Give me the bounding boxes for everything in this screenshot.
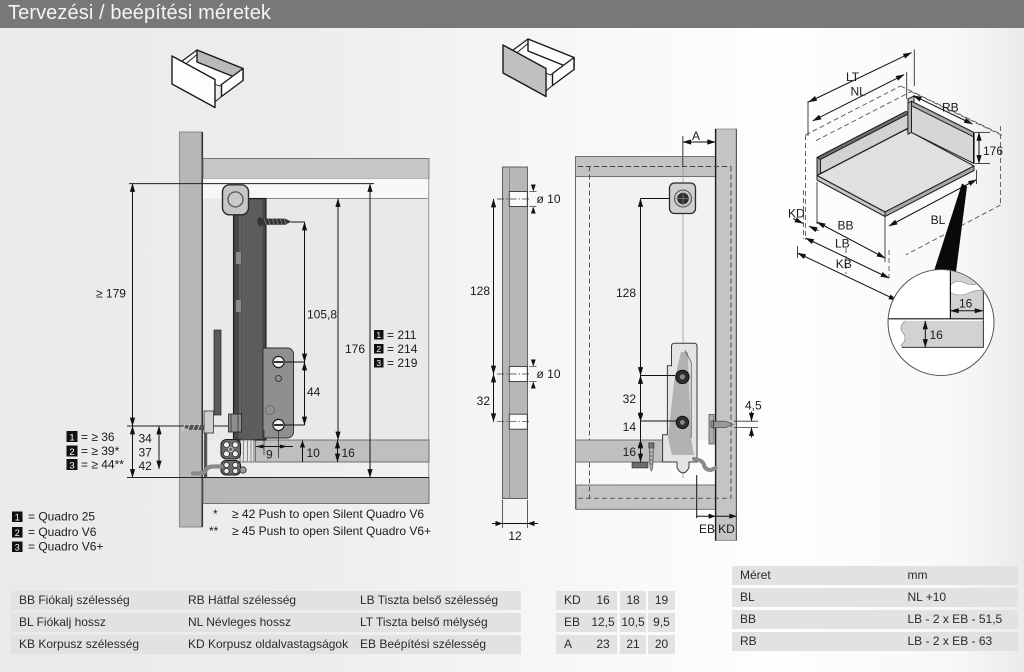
svg-text:= ≥ 36: = ≥ 36 [81,430,115,444]
svg-text:176: 176 [345,342,365,356]
svg-text:BB: BB [838,219,854,233]
svg-text:RB: RB [942,100,959,114]
svg-text:128: 128 [616,286,636,300]
svg-text:A: A [692,129,700,143]
svg-text:176: 176 [983,144,1003,158]
svg-text:2: 2 [69,447,74,458]
svg-text:3: 3 [15,542,20,552]
svg-text:105,8: 105,8 [307,308,337,322]
svg-text:16: 16 [623,445,637,459]
svg-text:KD: KD [788,207,805,221]
svg-text:≥ 179: ≥ 179 [96,287,126,301]
svg-text:ø 10: ø 10 [537,192,561,206]
svg-text:16: 16 [930,328,944,342]
svg-text:2: 2 [376,344,381,354]
svg-text:1: 1 [15,512,20,522]
svg-text:KB: KB [836,257,852,271]
svg-text:ø 10: ø 10 [537,367,561,381]
svg-text:128: 128 [470,284,490,298]
svg-text:2: 2 [15,528,20,538]
svg-text:= 219: = 219 [387,356,418,370]
svg-text:3: 3 [376,358,381,368]
svg-text:= ≥ 39*: = ≥ 39* [81,444,120,458]
svg-text:≥ 42 Push to open Silent Quadr: ≥ 42 Push to open Silent Quadro V6 [232,507,424,521]
svg-text:44: 44 [307,385,321,399]
svg-text:= ≥ 44**: = ≥ 44** [81,458,124,472]
svg-text:32: 32 [623,392,637,406]
svg-text:16: 16 [959,297,973,311]
svg-text:9: 9 [266,448,273,462]
svg-text:14: 14 [623,420,637,434]
svg-text:16: 16 [342,446,356,460]
svg-text:= Quadro 25: = Quadro 25 [28,510,95,524]
svg-text:LB: LB [835,237,850,251]
svg-text:12: 12 [508,529,522,543]
svg-text:1: 1 [376,330,381,340]
svg-text:KD: KD [718,522,735,536]
svg-text:≥ 45 Push to open Silent Quadr: ≥ 45 Push to open Silent Quadro V6+ [232,524,431,538]
svg-text:BL: BL [931,213,946,227]
svg-text:1: 1 [69,432,74,443]
svg-text:= 211: = 211 [387,328,417,342]
svg-text:= Quadro V6+: = Quadro V6+ [28,540,103,554]
svg-text:42: 42 [139,459,153,473]
svg-text:10: 10 [307,446,321,460]
svg-text:37: 37 [139,446,153,460]
svg-text:*: * [213,507,218,521]
svg-text:4,5: 4,5 [745,399,762,413]
svg-text:EB: EB [699,522,715,536]
svg-text:= Quadro V6: = Quadro V6 [28,525,97,539]
svg-text:32: 32 [477,394,491,408]
svg-text:3: 3 [69,460,74,471]
svg-text:NL: NL [851,85,867,99]
svg-text:LT: LT [846,70,860,84]
svg-text:34: 34 [139,432,153,446]
svg-text:**: ** [209,524,219,538]
svg-text:= 214: = 214 [387,342,418,356]
